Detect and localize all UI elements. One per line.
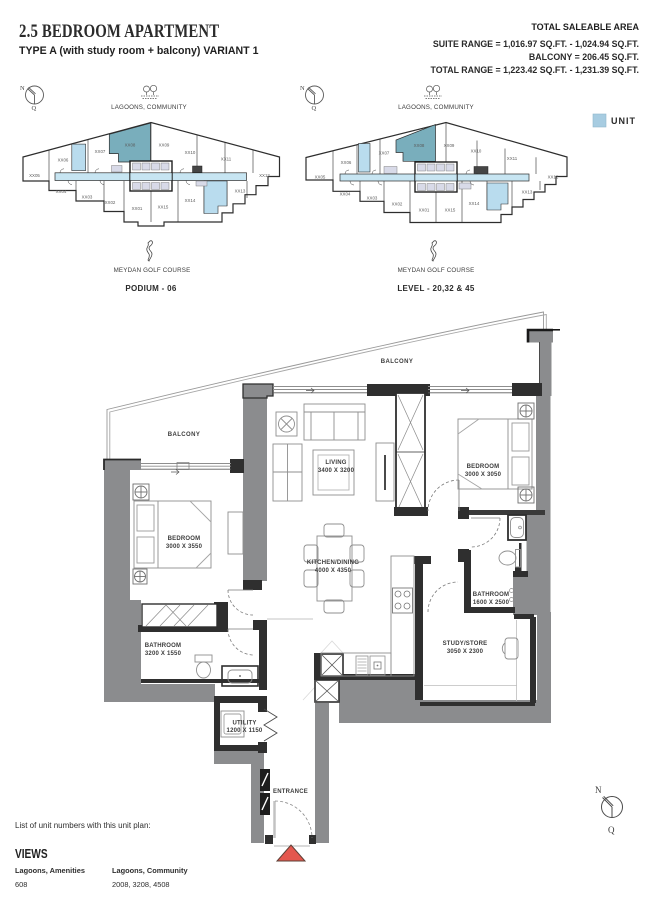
svg-text:PODIUM - 06: PODIUM - 06 — [125, 284, 177, 293]
svg-text:LEVEL - 20,32 & 45: LEVEL - 20,32 & 45 — [397, 284, 475, 293]
svg-text:MEYDAN GOLF COURSE: MEYDAN GOLF COURSE — [114, 267, 191, 274]
svg-text:TYPE A (with study room + balc: TYPE A (with study room + balcony) VARIA… — [19, 45, 259, 57]
svg-text:BALCONY = 206.45 SQ.FT.: BALCONY = 206.45 SQ.FT. — [529, 52, 639, 62]
svg-text:XX02: XX02 — [392, 202, 403, 207]
svg-text:UTILITY: UTILITY — [232, 721, 256, 727]
svg-text:XX15: XX15 — [445, 208, 456, 213]
svg-text:BEDROOM: BEDROOM — [467, 464, 500, 470]
svg-text:XX06: XX06 — [58, 158, 69, 163]
svg-text:N: N — [20, 85, 25, 92]
svg-text:XX15: XX15 — [158, 205, 169, 210]
svg-text:TOTAL SALEABLE AREA: TOTAL SALEABLE AREA — [531, 22, 639, 32]
svg-text:XX07: XX07 — [379, 151, 390, 156]
svg-text:XX08: XX08 — [125, 143, 136, 148]
svg-text:VIEWS: VIEWS — [15, 847, 48, 861]
svg-text:XX07: XX07 — [95, 149, 106, 154]
svg-text:3200 X 1550: 3200 X 1550 — [145, 651, 182, 657]
svg-text:3000 X 3050: 3000 X 3050 — [465, 472, 502, 478]
svg-text:XX06: XX06 — [341, 160, 352, 165]
svg-text:LAGOONS, COMMUNITY: LAGOONS, COMMUNITY — [111, 104, 187, 111]
svg-text:XX10: XX10 — [185, 150, 196, 155]
svg-text:XX03: XX03 — [82, 195, 93, 200]
svg-text:XX05: XX05 — [315, 175, 326, 180]
svg-text:ENTRANCE: ENTRANCE — [273, 789, 308, 795]
svg-text:XX05: XX05 — [29, 173, 40, 178]
svg-text:XX10: XX10 — [471, 149, 482, 154]
svg-text:LIVING: LIVING — [325, 460, 346, 466]
svg-text:BEDROOM: BEDROOM — [168, 536, 201, 542]
svg-text:List of unit numbers with this: List of unit numbers with this unit plan… — [15, 821, 151, 830]
svg-text:UNIT: UNIT — [611, 116, 636, 126]
svg-text:XX11: XX11 — [507, 156, 518, 161]
svg-text:XX01: XX01 — [132, 206, 143, 211]
svg-text:Q: Q — [608, 825, 615, 835]
svg-text:2.5 BEDROOM APARTMENT: 2.5 BEDROOM APARTMENT — [19, 20, 220, 41]
svg-text:XX09: XX09 — [159, 143, 170, 148]
svg-text:BATHROOM: BATHROOM — [473, 592, 509, 598]
svg-text:XX04: XX04 — [340, 192, 351, 197]
svg-text:608: 608 — [15, 880, 27, 889]
svg-text:3400 X 3200: 3400 X 3200 — [318, 468, 355, 474]
svg-text:XX14: XX14 — [469, 201, 480, 206]
svg-text:XX03: XX03 — [367, 196, 378, 201]
svg-text:Q: Q — [32, 105, 37, 112]
svg-text:KITCHEN/DINING: KITCHEN/DINING — [307, 560, 359, 566]
svg-text:XX13: XX13 — [235, 189, 246, 194]
svg-text:XX11: XX11 — [221, 157, 232, 162]
svg-text:BALCONY: BALCONY — [168, 432, 200, 438]
svg-text:XX13: XX13 — [522, 190, 533, 195]
svg-text:3050 X 2300: 3050 X 2300 — [447, 649, 484, 655]
svg-text:XX12: XX12 — [259, 173, 270, 178]
svg-text:3000 X 3550: 3000 X 3550 — [166, 544, 203, 550]
svg-text:BALCONY: BALCONY — [381, 359, 413, 365]
svg-text:XX02: XX02 — [105, 200, 116, 205]
svg-text:SUITE RANGE = 1,016.97 SQ.FT.: SUITE RANGE = 1,016.97 SQ.FT. - 1,024.94… — [433, 39, 639, 49]
svg-text:MEYDAN GOLF COURSE: MEYDAN GOLF COURSE — [398, 267, 475, 274]
svg-text:XX14: XX14 — [185, 198, 196, 203]
svg-text:TOTAL RANGE = 1,223.42 SQ.FT.: TOTAL RANGE = 1,223.42 SQ.FT. - 1,231.39… — [430, 65, 639, 75]
svg-text:Lagoons, Amenities: Lagoons, Amenities — [15, 866, 85, 875]
svg-text:BATHROOM: BATHROOM — [145, 643, 181, 649]
svg-text:XX08: XX08 — [414, 143, 425, 148]
svg-text:STUDY/STORE: STUDY/STORE — [443, 641, 488, 647]
svg-text:XX04: XX04 — [56, 189, 67, 194]
svg-text:XX09: XX09 — [444, 143, 455, 148]
svg-text:1200 X 1150: 1200 X 1150 — [227, 728, 263, 734]
svg-text:XX01: XX01 — [419, 208, 430, 213]
svg-text:N: N — [300, 85, 305, 92]
svg-text:Q: Q — [312, 105, 317, 112]
svg-text:XX12: XX12 — [548, 175, 559, 180]
svg-text:2008, 3208, 4508: 2008, 3208, 4508 — [112, 880, 170, 889]
svg-text:LAGOONS, COMMUNITY: LAGOONS, COMMUNITY — [398, 104, 474, 111]
svg-text:N: N — [595, 785, 602, 795]
svg-text:1600 X 2500: 1600 X 2500 — [473, 600, 510, 606]
svg-text:Lagoons, Community: Lagoons, Community — [112, 866, 188, 875]
svg-text:4000 X 4350: 4000 X 4350 — [315, 568, 352, 574]
